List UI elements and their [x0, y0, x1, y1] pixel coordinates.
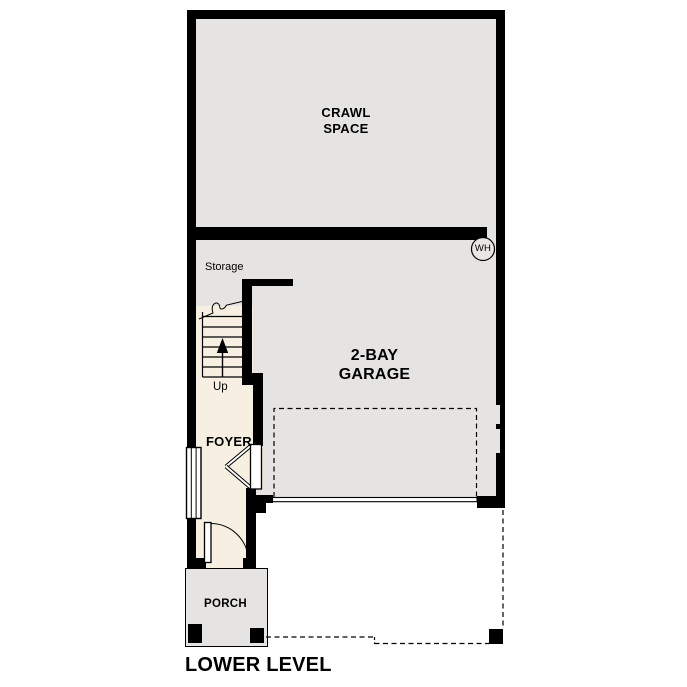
front-door: [205, 523, 249, 563]
room-label-storage: Storage: [205, 261, 244, 273]
driveway-dashed-outline: [266, 510, 503, 644]
water-heater-label: WH: [468, 243, 498, 254]
stairs-direction-label: Up: [213, 381, 228, 393]
overhead-door-dashed-outline: [274, 409, 477, 498]
room-label-garage: 2-BAY GARAGE: [334, 346, 415, 384]
floor-plan-lower-level: CRAWL SPACE 2-BAY GARAGE Storage Up FOYE…: [0, 0, 687, 687]
garage-entry-door: [226, 445, 262, 490]
plan-title: LOWER LEVEL: [185, 654, 332, 677]
garage-door-panel-line: [273, 498, 478, 502]
room-label-foyer: FOYER: [206, 434, 252, 449]
window-symbol: [187, 448, 202, 519]
room-label-crawl-space: CRAWL SPACE: [316, 105, 376, 136]
plan-linework: [0, 0, 687, 687]
room-label-porch: PORCH: [185, 598, 266, 610]
